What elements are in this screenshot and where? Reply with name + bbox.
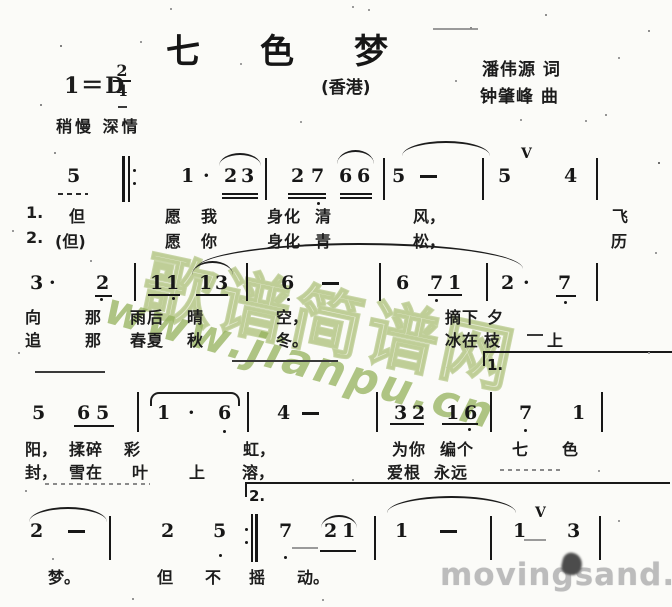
lyric-syllable: 追 xyxy=(25,327,41,351)
barline xyxy=(596,158,598,200)
slur xyxy=(321,515,357,528)
barline xyxy=(482,158,484,200)
octave-dot xyxy=(219,554,222,557)
repeat-dot xyxy=(245,528,248,531)
note-digit: 6 xyxy=(281,272,294,294)
note-digit: 7 xyxy=(519,402,532,424)
barline xyxy=(490,392,492,432)
octave-dot xyxy=(172,297,175,300)
stray-mark xyxy=(232,360,338,362)
slur xyxy=(219,153,261,166)
note-digit: 1 xyxy=(199,272,212,294)
beam xyxy=(428,294,462,296)
lyric-syllable: 根 xyxy=(404,459,420,483)
lyric-syllable: 向 xyxy=(25,304,41,328)
lyric-syllable: 愿 xyxy=(165,228,181,252)
lyric-syllable: 摇 xyxy=(249,564,265,588)
lyric-syllable: 我 xyxy=(201,203,217,227)
lyric-syllable: 但 xyxy=(157,564,173,588)
lyric-syllable: 春 xyxy=(130,327,146,351)
lyric-syllable: 冬。 xyxy=(276,327,308,351)
lyric-syllable: 摘 xyxy=(445,304,461,328)
note-digit: 3 xyxy=(215,272,228,294)
lyric-syllable: 1. xyxy=(26,203,43,222)
stray-mark xyxy=(118,106,127,108)
note-digit: 5 xyxy=(392,165,405,187)
barline xyxy=(109,516,111,560)
lyric-syllable: 那 xyxy=(85,327,101,351)
slur xyxy=(196,243,523,269)
note-digit: 7 xyxy=(279,520,292,542)
note-digit: · xyxy=(49,272,56,294)
half-note-dash xyxy=(68,530,85,533)
beam xyxy=(222,193,258,195)
note-digit: 2 xyxy=(161,520,174,542)
note-digit: 2 xyxy=(501,272,514,294)
repeat-dot xyxy=(133,169,136,172)
lyric-syllable: 上 xyxy=(189,459,205,483)
note-digit: 4 xyxy=(277,402,290,424)
barline xyxy=(376,392,378,432)
lyric-syllable: 晴 xyxy=(187,304,203,328)
repeat-dot xyxy=(133,182,136,185)
lyric-syllable: 彩 xyxy=(124,436,140,460)
beam xyxy=(340,197,372,199)
half-note-dash xyxy=(302,412,319,415)
lyric-syllable: 色 xyxy=(562,436,578,460)
lyric-syllable: (但) xyxy=(55,228,86,252)
repeat-end-barline xyxy=(251,514,253,562)
slur xyxy=(402,141,490,156)
lyric-syllable: 秋 xyxy=(187,327,203,351)
beam xyxy=(58,193,88,195)
note-digit: 5 xyxy=(32,402,45,424)
lyric-syllable: 梦。 xyxy=(48,564,80,588)
slur xyxy=(150,392,240,406)
volta-bracket xyxy=(483,351,672,366)
lyric-syllable: 清 xyxy=(315,203,331,227)
lyric-syllable: 封， xyxy=(25,459,57,483)
sheet-music-page: 歌谱简谱网 www.jianpu.cn movingsand.net 七色梦 1… xyxy=(0,0,672,607)
half-note-dash xyxy=(322,282,339,285)
half-note-dash xyxy=(420,175,437,178)
barline xyxy=(596,263,598,301)
octave-dot xyxy=(100,298,103,301)
lyric-syllable: 2. xyxy=(26,228,43,247)
lyric-syllable: 愿 xyxy=(165,203,181,227)
note-digit: 2 xyxy=(412,402,425,424)
note-digit: 6 xyxy=(464,402,477,424)
slur xyxy=(387,496,516,513)
lyric-syllable: 溶， xyxy=(242,459,274,483)
note-digit: 4 xyxy=(564,165,577,187)
lyric-syllable: 但 xyxy=(69,203,85,227)
lyric-syllable: 飞 xyxy=(612,203,628,227)
beam xyxy=(95,295,112,297)
lyric-syllable: 你 xyxy=(201,228,217,252)
note-digit: 7 xyxy=(558,272,571,294)
beam xyxy=(196,294,228,296)
note-digit: 7 xyxy=(311,165,324,187)
notation-area: 51·232766554V1.但愿我身化清风，飞2.(但)愿你身化青松，历3·2… xyxy=(0,0,672,607)
barline xyxy=(599,516,601,560)
barline xyxy=(247,392,249,432)
note-digit: 1 xyxy=(446,402,459,424)
volta-label: 2. xyxy=(249,487,265,505)
note-digit: 5 xyxy=(498,165,511,187)
lyric-syllable: 碎 xyxy=(86,436,102,460)
stray-mark xyxy=(292,547,318,549)
lyric-syllable: 身 xyxy=(267,203,283,227)
beam xyxy=(74,425,114,427)
note-digit: 7 xyxy=(430,272,443,294)
lyric-syllable: 虹， xyxy=(243,436,275,460)
stray-mark xyxy=(45,483,150,485)
barline xyxy=(265,158,267,200)
lyric-syllable: 编 xyxy=(440,436,456,460)
lyric-syllable: 枝 xyxy=(484,327,500,351)
lyric-syllable: 爱 xyxy=(387,459,403,483)
barline xyxy=(374,516,376,560)
octave-dot xyxy=(524,429,527,432)
octave-dot xyxy=(468,428,471,431)
octave-dot xyxy=(223,430,226,433)
volta-bracket xyxy=(245,482,670,497)
beam xyxy=(442,423,478,425)
repeat-end-barline xyxy=(255,514,258,562)
lyric-syllable: 不 xyxy=(205,564,221,588)
scan-noise xyxy=(0,0,2,2)
lyric-syllable: 远 xyxy=(451,459,467,483)
stray-mark xyxy=(527,334,543,336)
note-digit: 1 xyxy=(166,272,179,294)
lyric-syllable: 在 xyxy=(86,459,102,483)
stray-mark xyxy=(500,469,560,471)
note-digit: 5 xyxy=(96,402,109,424)
barline xyxy=(383,158,385,200)
lyric-syllable: 揉 xyxy=(69,436,85,460)
lyric-syllable: 叶 xyxy=(132,459,148,483)
lyric-syllable: 在 xyxy=(462,327,478,351)
lyric-syllable: 后 xyxy=(147,304,163,328)
lyric-syllable: 雨 xyxy=(130,304,146,328)
stray-mark xyxy=(35,371,105,373)
lyric-syllable: 动。 xyxy=(297,564,329,588)
note-digit: 1 xyxy=(181,165,194,187)
octave-dot xyxy=(287,298,290,301)
note-digit: 3 xyxy=(241,165,254,187)
barline xyxy=(134,263,136,301)
lyric-syllable: 为 xyxy=(392,436,408,460)
note-digit: 2 xyxy=(291,165,304,187)
note-digit: 1 xyxy=(395,520,408,542)
lyric-syllable: 那 xyxy=(85,304,101,328)
barline xyxy=(601,392,603,432)
beam xyxy=(390,423,424,425)
lyric-syllable: 上 xyxy=(547,327,563,351)
note-digit: 2 xyxy=(30,520,43,542)
note-digit: 1 xyxy=(572,402,585,424)
note-digit: 3 xyxy=(394,402,407,424)
note-digit: 6 xyxy=(396,272,409,294)
barline xyxy=(490,516,492,560)
note-digit: · xyxy=(523,272,530,294)
beam xyxy=(222,197,258,199)
half-note-dash xyxy=(440,530,457,533)
lyric-syllable: 下 xyxy=(462,304,478,328)
note-digit: 5 xyxy=(67,165,80,187)
beam xyxy=(320,550,356,552)
note-digit: 3 xyxy=(567,520,580,542)
note-digit: 3 xyxy=(30,272,43,294)
note-digit: 6 xyxy=(357,165,370,187)
octave-dot xyxy=(284,556,287,559)
breath-mark: V xyxy=(521,146,532,162)
volta-label: 1. xyxy=(487,356,503,374)
repeat-dot xyxy=(245,541,248,544)
lyric-syllable: 永 xyxy=(434,459,450,483)
repeat-begin-barline xyxy=(128,156,130,202)
lyric-syllable: 化 xyxy=(284,203,300,227)
beam xyxy=(556,295,576,297)
lyric-syllable: 夏 xyxy=(147,327,163,351)
stray-mark xyxy=(433,28,478,30)
lyric-syllable: 雪 xyxy=(69,459,85,483)
beam xyxy=(288,197,326,199)
note-digit: · xyxy=(203,165,210,187)
octave-dot xyxy=(564,301,567,304)
note-digit: 1 xyxy=(448,272,461,294)
note-digit: 2 xyxy=(224,165,237,187)
repeat-begin-barline xyxy=(122,156,125,202)
slur xyxy=(337,150,374,164)
note-digit: 6 xyxy=(77,402,90,424)
barline xyxy=(137,392,139,432)
note-digit: 2 xyxy=(96,272,109,294)
lyric-syllable: 七 xyxy=(512,436,528,460)
lyric-syllable: 历 xyxy=(611,228,627,252)
lyric-syllable: 阳， xyxy=(25,436,57,460)
breath-mark: V xyxy=(535,505,546,521)
lyric-syllable: 夕 xyxy=(487,304,503,328)
lyric-syllable: 个 xyxy=(457,436,473,460)
slur xyxy=(29,507,107,522)
stray-mark xyxy=(524,539,546,541)
lyric-syllable: 你 xyxy=(409,436,425,460)
lyric-syllable: 风， xyxy=(413,203,445,227)
beam xyxy=(288,193,326,195)
beam xyxy=(148,294,180,296)
beam xyxy=(340,193,372,195)
lyric-syllable: 冰 xyxy=(445,327,461,351)
note-digit: 6 xyxy=(339,165,352,187)
octave-dot xyxy=(435,299,438,302)
lyric-syllable: 空， xyxy=(276,304,308,328)
note-digit: 5 xyxy=(213,520,226,542)
note-digit: 1 xyxy=(150,272,163,294)
